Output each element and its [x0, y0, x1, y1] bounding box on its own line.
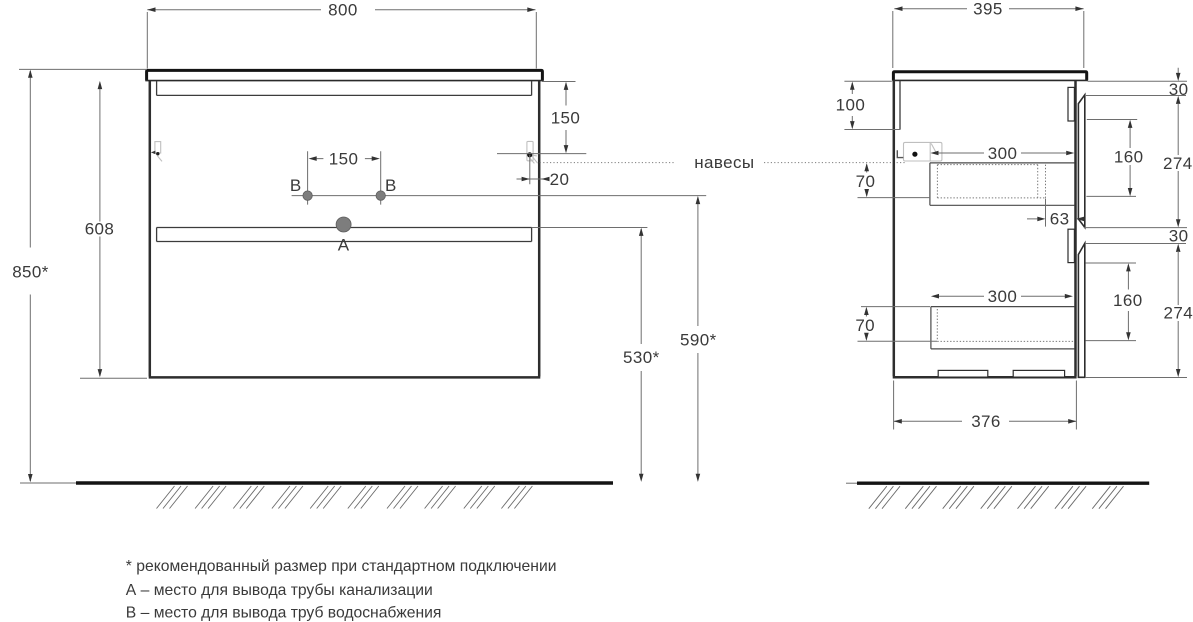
svg-text:В: В — [385, 176, 397, 195]
svg-text:300: 300 — [988, 287, 1018, 306]
svg-text:608: 608 — [85, 220, 115, 239]
svg-text:590*: 590* — [680, 330, 717, 349]
svg-text:70: 70 — [856, 172, 876, 191]
svg-text:150: 150 — [551, 108, 581, 127]
svg-text:30: 30 — [1169, 80, 1189, 99]
svg-text:100: 100 — [836, 96, 866, 115]
svg-text:160: 160 — [1113, 291, 1143, 310]
svg-text:63: 63 — [1050, 210, 1070, 229]
svg-text:160: 160 — [1114, 147, 1144, 166]
svg-text:530*: 530* — [623, 348, 660, 367]
svg-text:70: 70 — [855, 316, 875, 335]
svg-text:274: 274 — [1163, 154, 1193, 173]
svg-text:В: В — [290, 176, 302, 195]
svg-text:30: 30 — [1169, 227, 1189, 246]
svg-text:395: 395 — [973, 0, 1003, 19]
svg-text:150: 150 — [329, 149, 359, 168]
svg-text:376: 376 — [971, 412, 1001, 431]
svg-text:300: 300 — [988, 144, 1018, 163]
svg-text:20: 20 — [550, 170, 570, 189]
svg-text:А – место для вывода трубы кан: А – место для вывода трубы канализации — [126, 582, 433, 599]
svg-text:В – место для вывода труб водо: В – место для вывода труб водоснабжения — [126, 605, 442, 622]
svg-text:800: 800 — [328, 1, 358, 20]
svg-text:А: А — [338, 236, 350, 255]
svg-text:274: 274 — [1164, 304, 1193, 323]
svg-text:навесы: навесы — [694, 153, 754, 172]
svg-text:* рекомендованный размер при с: * рекомендованный размер при стандартном… — [126, 558, 557, 575]
svg-text:850*: 850* — [12, 262, 49, 281]
